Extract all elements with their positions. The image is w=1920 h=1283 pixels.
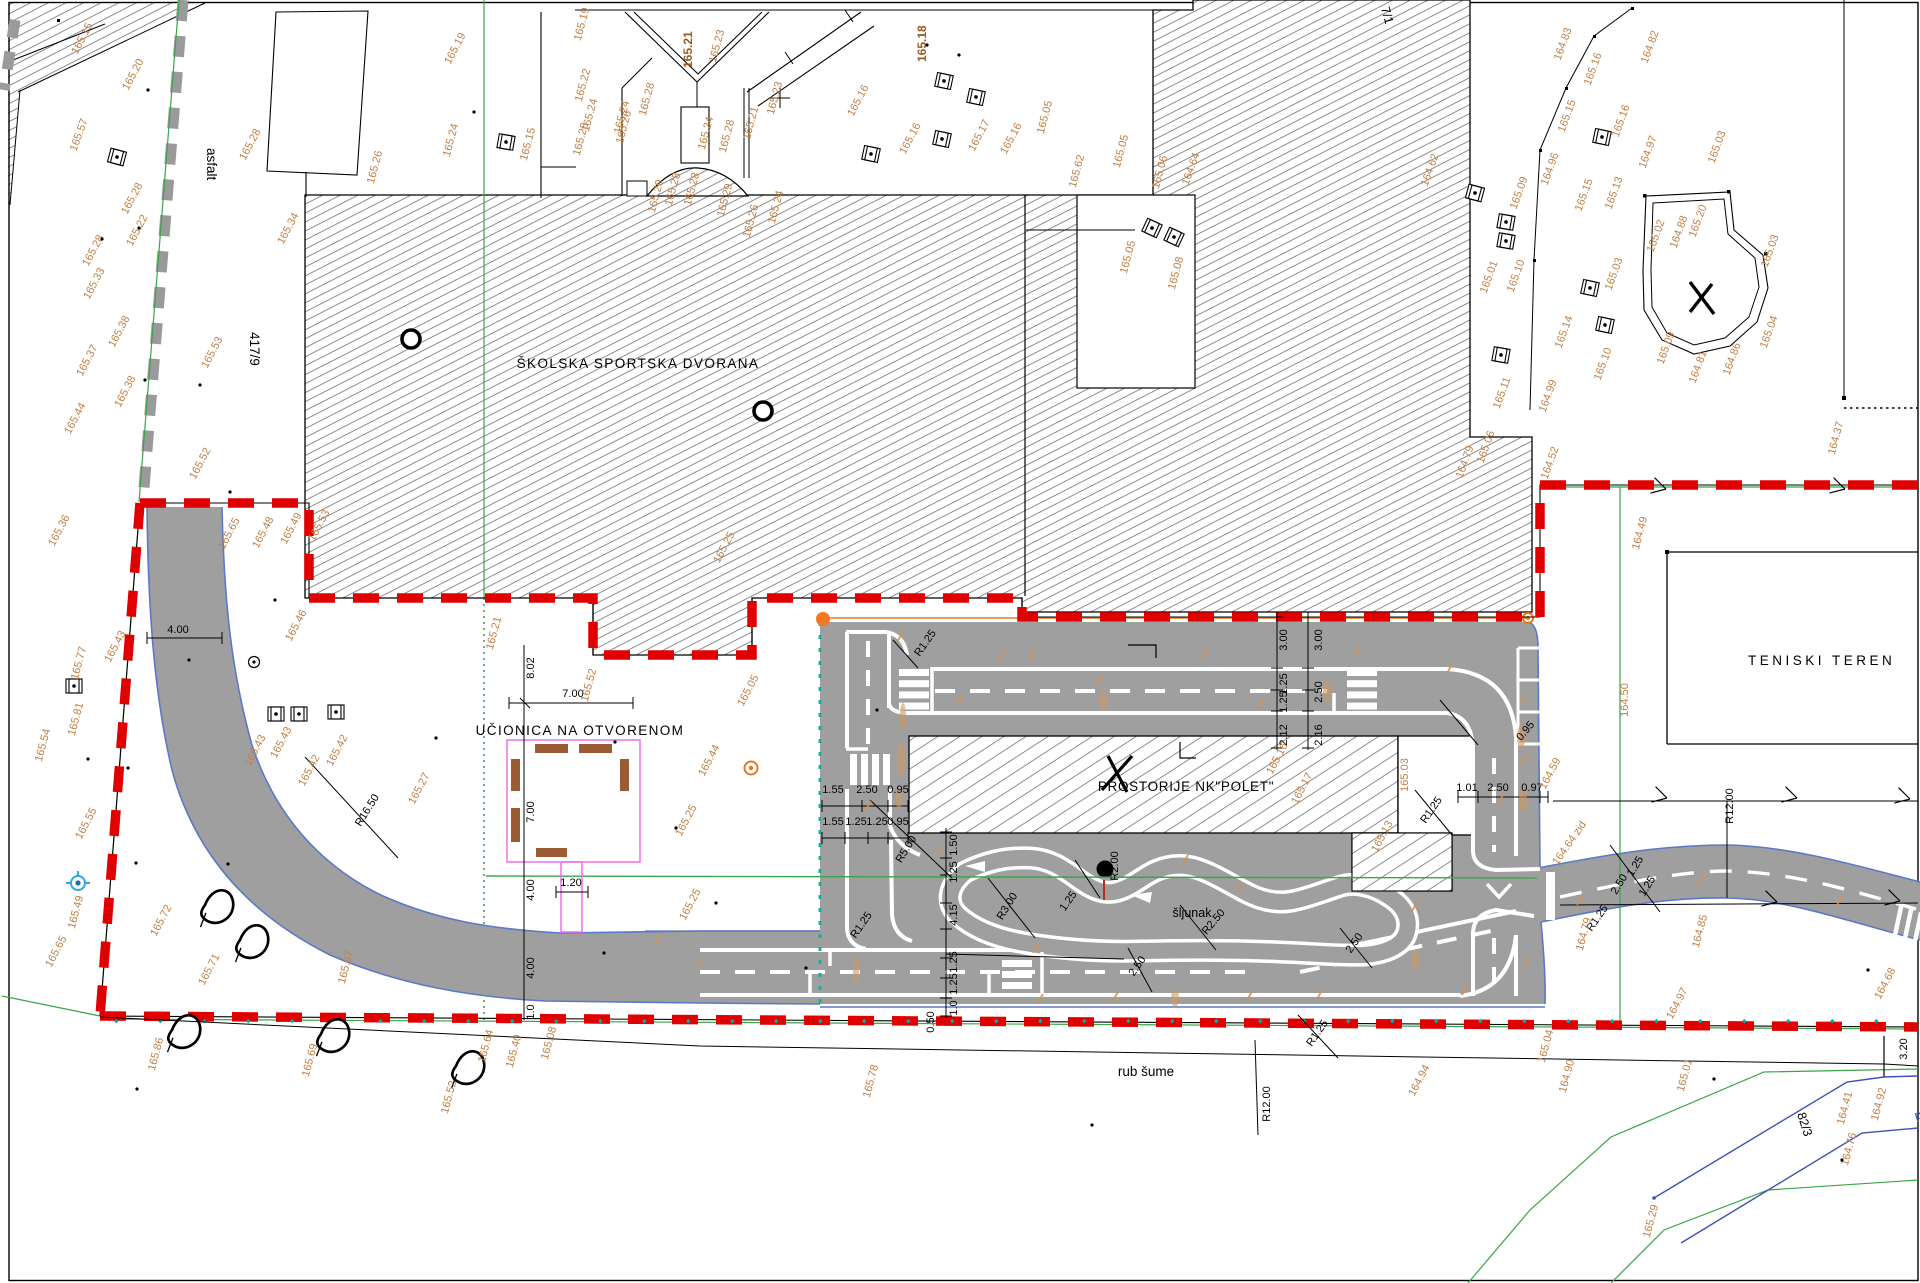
svg-text:ŠKOLSKA SPORTSKA DVORANA: ŠKOLSKA SPORTSKA DVORANA (517, 356, 760, 371)
svg-text:164.50: 164.50 (1619, 683, 1631, 717)
svg-text:165.03: 165.03 (1399, 758, 1411, 792)
svg-text:1.25: 1.25 (845, 816, 866, 828)
svg-text:1.25: 1.25 (948, 951, 960, 972)
svg-text:1.25: 1.25 (948, 973, 960, 994)
svg-text:2.50: 2.50 (856, 784, 877, 796)
svg-text:1.0: 1.0 (948, 1000, 960, 1015)
svg-text:1.55: 1.55 (822, 784, 843, 796)
svg-text:3.00: 3.00 (1278, 629, 1290, 650)
svg-text:4.00: 4.00 (525, 879, 537, 900)
svg-text:4.00: 4.00 (525, 957, 537, 978)
svg-text:UČIONICA NA OTVORENOM: UČIONICA NA OTVORENOM (476, 723, 685, 738)
svg-text:7.00: 7.00 (525, 801, 537, 822)
svg-text:šljunak: šljunak (1173, 906, 1213, 920)
svg-text:2.50: 2.50 (1313, 681, 1325, 702)
svg-text:PROSTORIJE NK"POLET": PROSTORIJE NK"POLET" (1098, 779, 1274, 794)
svg-text:417/9: 417/9 (247, 332, 262, 366)
svg-text:0.95: 0.95 (887, 784, 908, 796)
svg-text:8.02: 8.02 (525, 657, 537, 678)
svg-text:1.01: 1.01 (1456, 782, 1477, 794)
svg-text:TENISKI TEREN: TENISKI TEREN (1748, 653, 1895, 668)
svg-text:165.21: 165.21 (681, 31, 695, 68)
svg-text:rub šume: rub šume (1118, 1064, 1174, 1079)
svg-text:3.00: 3.00 (1313, 629, 1325, 650)
svg-text:1.25: 1.25 (1278, 691, 1290, 712)
svg-text:2.16: 2.16 (1313, 724, 1325, 745)
svg-text:1.55: 1.55 (822, 816, 843, 828)
svg-text:0.95: 0.95 (887, 816, 908, 828)
svg-text:asfalt: asfalt (204, 148, 219, 181)
svg-text:1.20: 1.20 (560, 877, 581, 889)
svg-text:1.25: 1.25 (866, 816, 887, 828)
svg-text:R2.00: R2.00 (1109, 851, 1121, 880)
svg-text:R12.00: R12.00 (1261, 1086, 1273, 1121)
svg-text:3.20: 3.20 (1898, 1038, 1910, 1059)
svg-text:0.50: 0.50 (925, 1011, 937, 1032)
svg-text:1.25: 1.25 (948, 861, 960, 882)
svg-text:4.00: 4.00 (167, 624, 188, 636)
svg-text:1.0: 1.0 (525, 1004, 537, 1019)
svg-text:4.15: 4.15 (948, 904, 960, 925)
svg-text:2.50: 2.50 (1487, 782, 1508, 794)
svg-text:1.50: 1.50 (948, 834, 960, 855)
svg-text:R12.00: R12.00 (1724, 788, 1736, 823)
